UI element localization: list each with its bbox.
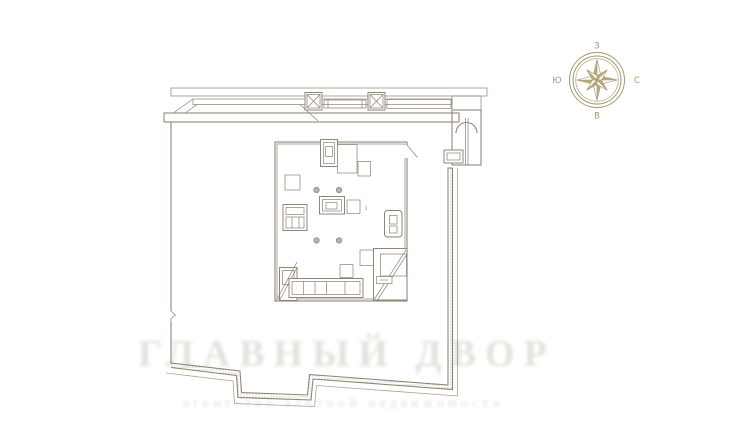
pergola-bench bbox=[324, 100, 451, 109]
room-number-label: 1 bbox=[365, 206, 368, 212]
roof-room-rect bbox=[338, 145, 358, 174]
wc-unit bbox=[385, 211, 403, 238]
compass-label-left: Ю bbox=[552, 76, 561, 86]
bench-long bbox=[289, 279, 363, 298]
wall-break-symbol bbox=[171, 311, 176, 322]
column-dots bbox=[314, 187, 342, 243]
floorplan-page: ГЛАВНЫЙ ДВОР агентство элитной недвижимо… bbox=[0, 0, 740, 444]
terrace-floorplan-drawing: 1 bbox=[0, 0, 740, 444]
elevator-core bbox=[320, 197, 345, 215]
compass-star bbox=[577, 60, 618, 101]
staircase-top-right bbox=[444, 96, 481, 165]
compass-rose: З С В Ю bbox=[552, 42, 640, 122]
shaft-square bbox=[347, 200, 360, 214]
stair-core-top bbox=[321, 140, 338, 167]
pergola-column-x-1 bbox=[305, 93, 322, 111]
compass-label-top: З bbox=[594, 42, 599, 52]
pergola-column-x-2 bbox=[368, 93, 385, 111]
skylight-left bbox=[285, 175, 300, 190]
terrace-outer-wall bbox=[166, 122, 458, 407]
compass-label-bottom: В bbox=[594, 112, 600, 122]
compass-label-right: С bbox=[634, 76, 640, 86]
parapet-tick-band bbox=[171, 88, 487, 96]
table-small-center bbox=[340, 265, 353, 278]
skylight-right bbox=[358, 162, 371, 177]
table-small-right bbox=[360, 250, 374, 266]
top-wall-hatched bbox=[164, 113, 459, 122]
stair-corner-right bbox=[374, 249, 408, 301]
cabinet-left bbox=[283, 205, 307, 231]
